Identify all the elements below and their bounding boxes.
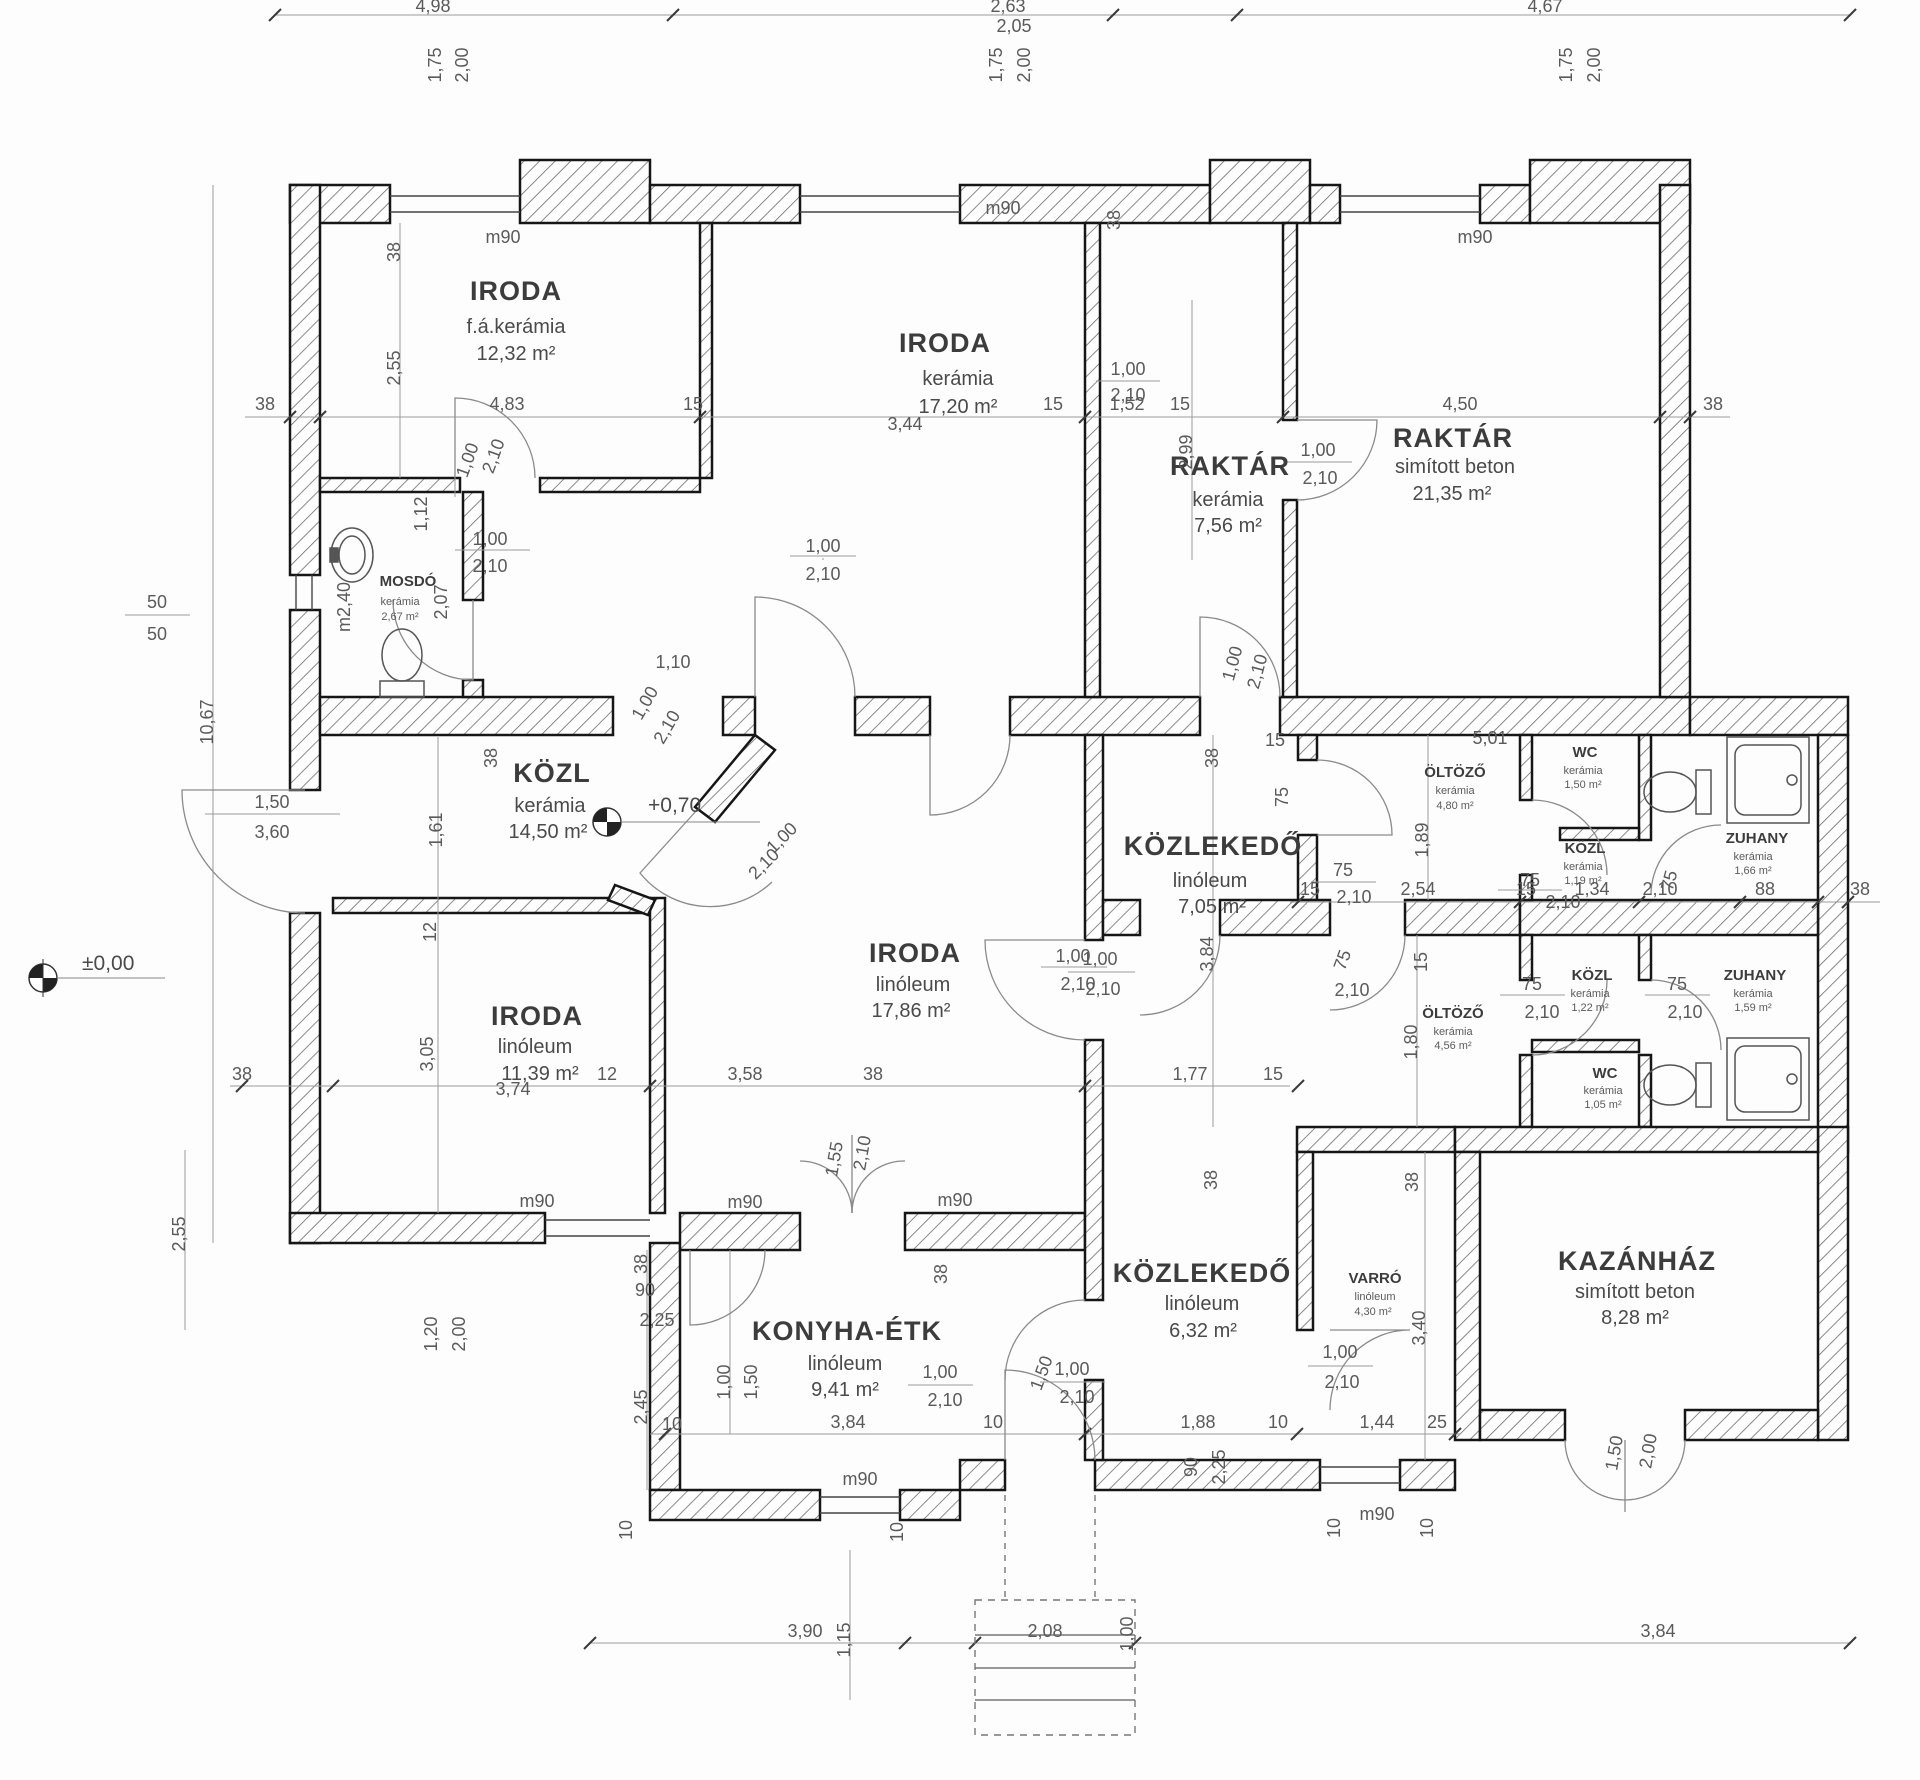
dimension-label: 1,00: [714, 1364, 734, 1399]
dimension-label: 15: [1516, 879, 1536, 899]
dimension-label: 3,84: [830, 1412, 865, 1432]
dimension-label: 1,00: [1322, 1342, 1357, 1362]
room-material: kerámia: [1570, 988, 1610, 1000]
sink-mosdo: [330, 528, 373, 582]
dimension-label: 15: [683, 394, 703, 414]
dimension-label: 3,58: [727, 1064, 762, 1084]
room-name: VARRÓ: [1348, 1269, 1401, 1287]
room-material: linóleum: [876, 974, 950, 996]
dimension-label: 50: [147, 624, 167, 644]
dimension-label: m2,40: [334, 582, 354, 632]
dimension-label: 38: [384, 242, 404, 262]
dimension-label: 1,75: [425, 47, 445, 82]
dimension-label: 38: [931, 1264, 951, 1284]
dimension-label: 2,10: [649, 707, 684, 747]
dimension-label: 38: [481, 748, 501, 768]
room-name: ZUHANY: [1726, 830, 1789, 847]
room-name: IRODA: [470, 276, 562, 306]
dimension-label: 12: [420, 922, 440, 942]
room-name: WC: [1573, 744, 1598, 761]
dimension-label: 3,05: [417, 1036, 437, 1071]
dimension-label: 1,77: [1172, 1064, 1207, 1084]
dimension-label: 1,88: [1180, 1412, 1215, 1432]
dimension-label: 12: [597, 1064, 617, 1084]
dimension-label: 75: [1330, 947, 1356, 973]
dimension-label: m90: [937, 1190, 972, 1210]
room-name: IRODA: [869, 938, 961, 968]
room-area: 12,32 m²: [477, 343, 556, 365]
dimension-label: 1,00: [627, 683, 662, 723]
room-area: 21,35 m²: [1413, 483, 1492, 505]
room-name: KÖZLEKEDŐ: [1124, 830, 1303, 861]
dimension-label: 75: [1333, 860, 1353, 880]
dimension-label: 10: [1417, 1518, 1437, 1538]
dimension-label: 3,60: [254, 822, 289, 842]
room-area: 8,28 m²: [1601, 1307, 1669, 1329]
dimension-label: 2,00: [1584, 47, 1604, 82]
dimension-label: 2,10: [1667, 1002, 1702, 1022]
dimension-label: 1,50: [741, 1364, 761, 1399]
dimension-label: 1,00: [452, 440, 483, 480]
room-area: 7,05 m²: [1178, 896, 1246, 918]
level-plus070-label: +0,70: [648, 794, 701, 817]
dimension-label: 2,00: [449, 1316, 469, 1351]
dimension-label: 10: [983, 1412, 1003, 1432]
dimension-label: 2,00: [452, 47, 472, 82]
dimension-label: 2,63: [990, 0, 1025, 16]
dimension-label: 2,10: [478, 436, 509, 476]
dimension-label: 5,01: [1472, 728, 1507, 748]
dimension-label: 10: [662, 1414, 682, 1434]
level-zero-label: ±0,00: [82, 952, 134, 975]
dimension-label: 1,00: [1117, 1616, 1137, 1651]
dimension-label: 2,10: [805, 564, 840, 584]
room-material: kerámia: [1435, 785, 1475, 797]
dimension-label: 2,10: [1110, 385, 1145, 405]
dimension-label: 4,67: [1527, 0, 1562, 16]
dimension-label: 15: [1263, 1064, 1283, 1084]
room-name: ÖLTÖZŐ: [1424, 763, 1486, 781]
dimension-label: 1,80: [1401, 1024, 1421, 1059]
dimension-label: 2,10: [1324, 1372, 1359, 1392]
dimension-label: 75: [1272, 787, 1292, 807]
room-name: KONYHA-ÉTK: [752, 1315, 942, 1346]
room-area: 1,66 m²: [1734, 865, 1772, 877]
room-name: KÖZL: [1572, 967, 1613, 984]
dimension-label: 2,10: [1642, 879, 1677, 899]
room-material: simított beton: [1395, 456, 1515, 478]
room-material: kerámia: [1733, 988, 1773, 1000]
dimension-label: 10: [1268, 1412, 1288, 1432]
shower-tray-bottom: [1727, 1038, 1809, 1120]
dimension-label: 3,74: [495, 1079, 530, 1099]
dimension-label: 2,10: [1243, 652, 1271, 691]
dimension-label: 1,89: [1412, 822, 1432, 857]
dimension-label: m90: [1359, 1504, 1394, 1524]
dimension-label: 15: [1411, 952, 1431, 972]
room-area: 4,30 m²: [1354, 1306, 1392, 1318]
room-name: KÖZLEKEDŐ: [1113, 1257, 1292, 1288]
room-area: 2,67 m²: [381, 611, 419, 623]
dimension-label: 1,00: [1054, 1359, 1089, 1379]
room-area: 17,86 m²: [872, 1000, 951, 1022]
dimension-label: 38: [1201, 1170, 1221, 1190]
room-area: 1,22 m²: [1571, 1002, 1609, 1014]
dimension-label: 15: [1043, 394, 1063, 414]
dimension-label: 2,45: [631, 1389, 651, 1424]
dimension-label: 2,55: [384, 350, 404, 385]
dimension-label: 38: [631, 1254, 651, 1274]
dimension-label: 1,00: [1218, 644, 1246, 683]
dimension-label: 38: [1703, 394, 1723, 414]
dimension-label: m90: [727, 1192, 762, 1212]
room-area: 1,50 m²: [1564, 779, 1602, 791]
dimension-label: 38: [255, 394, 275, 414]
dimension-label: 4,98: [415, 0, 450, 16]
dimension-label: 38: [232, 1064, 252, 1084]
toilet-mosdo: [380, 629, 424, 697]
room-material: kerámia: [1733, 851, 1773, 863]
floor-plan-drawing: IRODA f.á.kerámia 12,32 m² IRODA kerámia…: [0, 0, 1920, 1780]
dimension-label: 90: [635, 1280, 655, 1300]
dimension-label: 2,10: [1085, 979, 1120, 999]
room-material: linóleum: [498, 1036, 572, 1058]
dimension-label: 38: [1402, 1172, 1422, 1192]
dimension-label: 1,50: [1601, 1434, 1627, 1472]
dimension-label: 1,50: [254, 792, 289, 812]
room-area: 7,56 m²: [1194, 515, 1262, 537]
dimension-label: 1,00: [922, 1362, 957, 1382]
dimension-label: 2,10: [1524, 1002, 1559, 1022]
dimension-label: 3,44: [887, 414, 922, 434]
room-area: 6,32 m²: [1169, 1320, 1237, 1342]
dimension-label: 1,00: [1300, 440, 1335, 460]
dimension-label: 2,00: [1635, 1432, 1661, 1470]
dimension-label: 1,10: [655, 652, 690, 672]
dimension-label: 38: [1850, 879, 1870, 899]
dimension-label: 3,90: [787, 1621, 822, 1641]
dimension-label: 15: [1265, 730, 1285, 750]
room-material: linóleum: [1165, 1293, 1239, 1315]
dimension-label: 1,00: [805, 536, 840, 556]
dimension-label: 2,54: [1400, 879, 1435, 899]
dimension-label: 2,10: [849, 1134, 875, 1172]
dimension-label: 1,75: [986, 47, 1006, 82]
room-material: kerámia: [1563, 765, 1603, 777]
dimension-label: 38: [1202, 748, 1222, 768]
dimension-label: 2,10: [1059, 1387, 1094, 1407]
room-name: KÖZL: [513, 758, 591, 788]
room-material: kerámia: [922, 368, 994, 390]
dimension-label: 3,84: [1640, 1621, 1675, 1641]
entry-steps: [975, 1495, 1135, 1735]
room-area: 1,05 m²: [1584, 1099, 1622, 1111]
toilet-wc-bottom: [1644, 1063, 1711, 1107]
room-material: kerámia: [1563, 861, 1603, 873]
dimension-label: 2,10: [472, 556, 507, 576]
room-material: kerámia: [380, 596, 420, 608]
dimension-label: 15: [1300, 879, 1320, 899]
dimension-label: 2,10: [1336, 887, 1371, 907]
room-name: WC: [1593, 1065, 1618, 1082]
room-material: kerámia: [514, 795, 586, 817]
dimension-label: 1,44: [1359, 1412, 1394, 1432]
room-material: linóleum: [1355, 1291, 1396, 1303]
dimension-label: 15: [1170, 394, 1190, 414]
room-name: IRODA: [899, 328, 991, 358]
dimension-label: 3,40: [1409, 1310, 1429, 1345]
dimension-label: 1,20: [421, 1316, 441, 1351]
room-name: ZUHANY: [1724, 967, 1787, 984]
dimension-label: 2,05: [996, 16, 1031, 36]
dimension-label: 1,75: [1556, 47, 1576, 82]
dimension-label: 1,50: [1026, 1353, 1057, 1393]
room-area: 9,41 m²: [811, 1379, 879, 1401]
dimension-label: 10,67: [197, 699, 217, 744]
dimension-label: 2,10: [1302, 468, 1337, 488]
dimension-label: 1,61: [426, 812, 446, 847]
room-name: RAKTÁR: [1393, 422, 1513, 453]
room-name: IRODA: [491, 1001, 583, 1031]
dimension-label: m90: [519, 1191, 554, 1211]
dimension-label: 1,00: [1082, 949, 1117, 969]
dimension-label: 1,15: [834, 1622, 854, 1657]
dimension-label: 2,25: [1209, 1449, 1229, 1484]
room-material: kerámia: [1583, 1085, 1623, 1097]
dimension-label: 1,00: [1110, 359, 1145, 379]
room-name: KÖZL: [1565, 840, 1606, 857]
dimension-label: 38: [1104, 210, 1124, 230]
dimension-label: 3,84: [1197, 936, 1217, 971]
dimension-label: 38: [863, 1064, 883, 1084]
dimension-label: 2,07: [431, 584, 451, 619]
dimension-label: 1,12: [411, 496, 431, 531]
room-material: kerámia: [1433, 1026, 1473, 1038]
dimension-label: 88: [1755, 879, 1775, 899]
room-area: 4,56 m²: [1434, 1040, 1472, 1052]
dimension-label: 50: [147, 592, 167, 612]
room-material: linóleum: [1173, 870, 1247, 892]
dimension-label: 10: [887, 1522, 907, 1542]
floor-plan-canvas: IRODA f.á.kerámia 12,32 m² IRODA kerámia…: [0, 0, 1920, 1780]
dimension-label: 1,55: [821, 1140, 847, 1178]
dimension-label: 2,25: [639, 1310, 674, 1330]
room-material: kerámia: [1192, 489, 1264, 511]
dimension-label: 2,00: [1014, 47, 1034, 82]
dimension-label: 2,99: [1176, 434, 1196, 469]
room-name: MOSDÓ: [380, 572, 437, 590]
dimension-label: 4,83: [489, 394, 524, 414]
dimension-label: 2,08: [1027, 1621, 1062, 1641]
room-name: ÖLTÖZŐ: [1422, 1004, 1484, 1022]
dimension-label: 75: [1522, 974, 1542, 994]
room-material: linóleum: [808, 1353, 882, 1375]
room-area: 14,50 m²: [509, 821, 588, 843]
room-name: KAZÁNHÁZ: [1558, 1245, 1716, 1276]
room-material: f.á.kerámia: [467, 316, 567, 338]
dimension-label: 10: [616, 1520, 636, 1540]
dimension-label: 1,00: [472, 529, 507, 549]
dimension-label: 75: [1667, 974, 1687, 994]
dimension-label: 25: [1427, 1412, 1447, 1432]
dimension-label: 2,55: [169, 1216, 189, 1251]
dimension-label: 90: [1181, 1457, 1201, 1477]
dimension-label: m90: [985, 198, 1020, 218]
room-area: 4,80 m²: [1436, 800, 1474, 812]
room-material: simított beton: [1575, 1281, 1695, 1303]
dimension-label: 10: [1324, 1518, 1344, 1538]
dimension-label: m90: [842, 1469, 877, 1489]
room-area: 17,20 m²: [919, 396, 998, 418]
dimension-label: 2,10: [927, 1390, 962, 1410]
room-area: 1,59 m²: [1734, 1002, 1772, 1014]
dimension-label: 2,10: [1334, 980, 1369, 1000]
dimension-label: 4,50: [1442, 394, 1477, 414]
toilet-wc-top: [1644, 770, 1711, 814]
dimension-label: 1,34: [1574, 879, 1609, 899]
dimension-label: m90: [1457, 227, 1492, 247]
dimension-label: m90: [485, 227, 520, 247]
shower-tray-top: [1727, 737, 1809, 823]
